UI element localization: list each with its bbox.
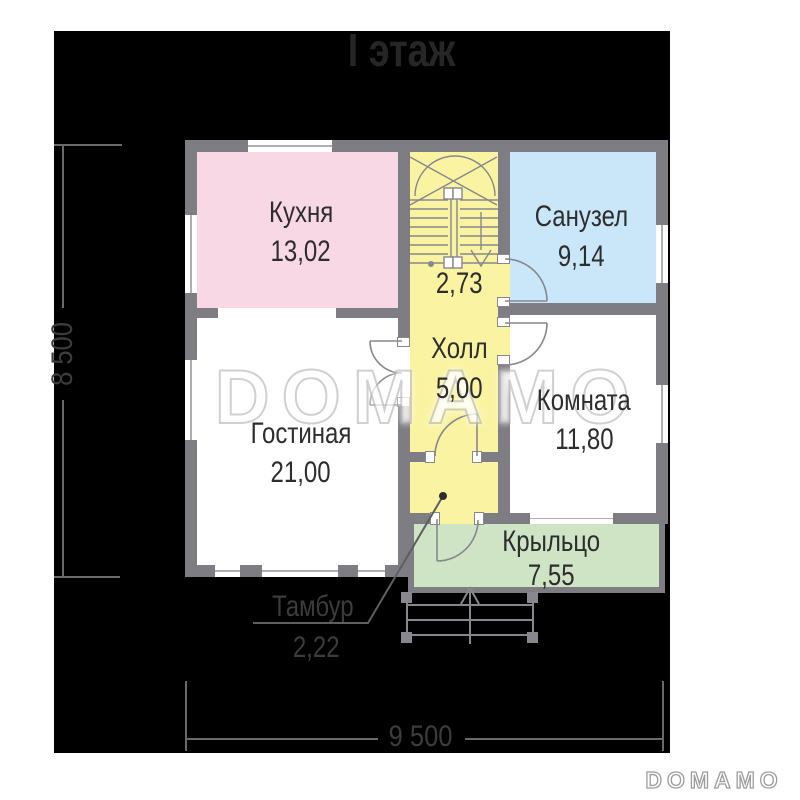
room-area: 2,22 [293,629,340,667]
room-name: Тамбур [272,588,353,625]
dim-tick [662,681,664,751]
room-name: Крыльцо [502,525,600,559]
dim-tick [54,576,120,578]
floor-plan-page: I этаж [0,0,800,800]
room-area: 5,00 [436,369,483,409]
label-porch: Крыльцо 7,55 [461,525,641,593]
label-vestibule-name: Тамбур [233,588,393,625]
label-vestibule-area: 2,22 [233,629,399,667]
porch-steps-icon [401,588,538,644]
label-room: Комната 11,80 [494,381,674,459]
room-name: Холл [431,329,488,369]
room-area: 9,14 [558,237,605,277]
label-kitchen: Кухня 13,02 [201,193,401,271]
room-name: Гостиная [251,414,352,453]
room-name: Кухня [269,193,333,232]
room-area: 11,80 [555,420,613,459]
staircase-icon [410,156,498,268]
dimension-height-label: 8 500 [43,269,83,439]
brand-logo: DOMAMO [636,765,792,795]
dimension-height-value: 8 500 [46,322,79,386]
room-area: 13,02 [271,232,331,271]
label-stair-landing: 2,73 [371,265,547,303]
room-area: 2,73 [436,265,483,303]
room-name: Комната [537,381,631,420]
room-area: 7,55 [528,559,575,593]
dimension-width-label: 9 500 [321,718,521,756]
dim-tick [185,681,187,751]
dimension-width-value: 9 500 [389,718,453,756]
room-name: Санузел [534,197,628,237]
dim-tick [54,144,122,146]
room-area: 21,00 [271,453,331,492]
label-living-room: Гостиная 21,00 [201,414,401,492]
